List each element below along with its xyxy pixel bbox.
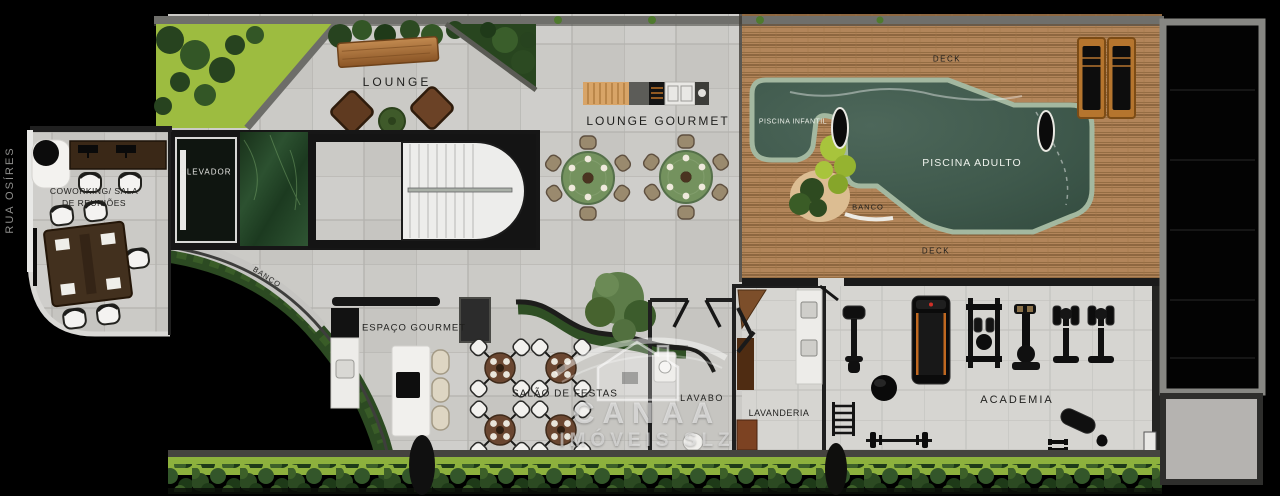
coworking-line2: DE REUNIÕES: [50, 197, 138, 209]
label-deck-bottom: DECK: [922, 247, 950, 256]
treadmill: [912, 296, 950, 384]
deck-tree: [1038, 111, 1054, 151]
right-shaft: [1163, 22, 1262, 392]
floor-plan-stage: LOUNGE LOUNGE GOURMET ELEVADOR COWORKING…: [0, 0, 1280, 496]
room-label-elevador: ELEVADOR: [181, 168, 232, 177]
room-label-lounge-gourmet: LOUNGE GOURMET: [586, 114, 729, 128]
watermark-subtitle: IMÓVEIS SLZ: [559, 430, 734, 452]
street-label: RUA OSÍRES: [4, 146, 16, 233]
garden-tree: [825, 443, 847, 495]
room-label-academia: ACADEMIA: [980, 394, 1053, 406]
green-marble-panel: [240, 132, 308, 246]
garden-tree: [409, 435, 435, 495]
stair-handrail: [408, 188, 512, 192]
top-wall: [154, 16, 1164, 24]
label-deck-top: DECK: [933, 55, 961, 64]
stools: [432, 350, 449, 430]
cooktop: [396, 372, 420, 398]
label-piscina-infantil: PISCINA INFANTIL: [759, 119, 827, 126]
coworking-room: [27, 126, 172, 335]
gourmet-counter: [583, 82, 709, 105]
room-label-espaco-gourmet: ESPAÇO GOURMET: [362, 323, 466, 334]
core-block: [168, 130, 540, 250]
deck-tree: [832, 108, 848, 148]
watermark-brand: CANAA: [573, 397, 721, 431]
room-label-lavanderia: LAVANDERIA: [749, 408, 810, 418]
label-piscina-adulto: PISCINA ADULTO: [922, 157, 1021, 169]
room-label-lounge: LOUNGE: [363, 75, 432, 89]
right-room: [1163, 396, 1260, 482]
coworking-line1: COWORKING/ SALA: [50, 185, 138, 197]
fridge: [460, 298, 490, 342]
room-label-coworking: COWORKING/ SALA DE REUNIÕES: [50, 185, 138, 209]
gym-ball: [871, 375, 897, 401]
wood-bench: [737, 420, 757, 450]
label-banco-pool: BANCO: [852, 203, 884, 212]
tv-screen: [33, 228, 37, 286]
